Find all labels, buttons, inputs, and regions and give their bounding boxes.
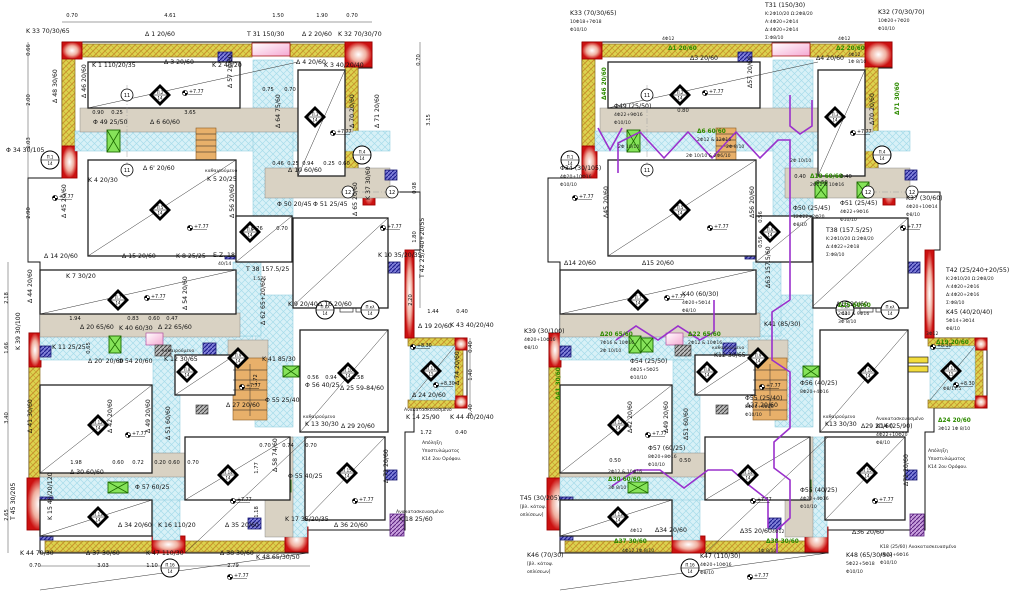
- column-marker-blue: [385, 170, 397, 180]
- svg-text:14: 14: [879, 156, 885, 161]
- note-label: Κ:2Φ10/20 Ω:2Φ8/20: [826, 236, 874, 242]
- panel-marker-circle: Π.1614: [161, 559, 179, 577]
- member-label: Δ 37 30/60: [86, 550, 120, 557]
- dimension-label: 2.18: [4, 292, 10, 304]
- drawing-stage: Π.214Π.314Π.514Π.614Π.714Π.814Π.914Π.101…: [0, 0, 1024, 595]
- svg-text:Π.4: Π.4: [359, 150, 366, 155]
- member-label: K12 30/65: [714, 352, 746, 359]
- svg-text:+7.77: +7.77: [879, 497, 894, 503]
- svg-text:14: 14: [225, 476, 231, 481]
- column-marker-red: [455, 338, 467, 350]
- member-label: Δ14 20/60: [564, 260, 596, 267]
- member-label: Δ 16 20/60: [318, 301, 352, 308]
- note-label: 4Φ25+5Φ25: [630, 367, 659, 373]
- wall-beam-pink: [252, 43, 290, 56]
- beam-label-green: Δ6 60/60: [697, 129, 726, 135]
- note-label: 8Φ20+8Φ16: [648, 454, 677, 460]
- note-label: 8Φ20+4Φ16: [800, 389, 829, 395]
- beam-label-green: Δ30 60/60: [608, 477, 641, 483]
- dimension-label: 0.25: [323, 161, 335, 167]
- member-label: K 3 40/20/40: [324, 62, 364, 69]
- dimension-label: 0.56: [758, 236, 764, 248]
- member-label: Δ36 20/60: [852, 529, 884, 536]
- beam-label-green: Δ1 20/60: [668, 46, 697, 52]
- note-label: 2Φ 10/10: [600, 348, 621, 354]
- member-label: K 5 20/25: [207, 176, 237, 183]
- note-label: 2Φ12 & 12Φ16: [697, 137, 731, 143]
- svg-text:14: 14: [767, 233, 773, 238]
- svg-text:Π.13: Π.13: [613, 512, 623, 517]
- column-marker-blue: [908, 262, 920, 273]
- beam-label-green: Δ19 20/60: [936, 340, 969, 346]
- member-label: K 12 30/65: [164, 356, 198, 363]
- member-label: Δ 10 60/60: [288, 167, 322, 174]
- note-label: 2Φ10 & 9Φ16: [838, 311, 869, 317]
- member-label: T42 (25/240+20/55): [945, 267, 1009, 274]
- note-label: 10Φ20+7Φ20: [878, 18, 910, 24]
- member-label: T 42 25/240+20/55: [419, 218, 426, 279]
- member-label: Δ 38 30/60: [220, 550, 254, 557]
- note-label: Φ10/10: [648, 462, 665, 468]
- svg-text:14: 14: [157, 96, 163, 101]
- member-label: K 41 85/30: [262, 356, 296, 363]
- beam-label-green: Δ22 65/60: [688, 332, 721, 338]
- dimension-label: 0.70: [187, 460, 199, 466]
- dimension-label: 0.50: [679, 458, 691, 464]
- svg-text:+7.77: +7.77: [757, 497, 772, 503]
- dimension-label: 0.90: [92, 110, 104, 116]
- column-marker-blue: [388, 262, 400, 273]
- svg-text:Π.2: Π.2: [157, 90, 164, 95]
- member-label: Δ 71 20/60: [374, 94, 381, 128]
- member-label: Δ 45 20/60: [61, 184, 68, 218]
- note-label: 3Φ12 1Φ 8/10: [938, 426, 970, 432]
- member-label: Φ 49 25/50: [93, 119, 128, 126]
- member-label: K13 30/30: [825, 421, 857, 428]
- panel-marker-circle: Π.1614: [681, 559, 699, 577]
- member-label: K 4 20/30: [88, 177, 118, 184]
- svg-text:14: 14: [615, 426, 621, 431]
- dimension-label: 1.77: [254, 462, 260, 474]
- dimension-label: 0.72: [132, 460, 144, 466]
- dimension-label: 0.94: [325, 375, 337, 381]
- svg-text:14: 14: [359, 156, 365, 161]
- wall-segment: [62, 57, 75, 148]
- member-label: Φ56 (40/25): [800, 380, 837, 387]
- member-label: Δ49 20/60: [663, 401, 670, 433]
- svg-text:+7.77: +7.77: [857, 129, 872, 135]
- note-label: 2Φ12 & 10Φ16: [608, 469, 642, 475]
- svg-text:14: 14: [677, 96, 683, 101]
- svg-text:14: 14: [864, 474, 870, 479]
- column-marker-blue: [40, 346, 51, 357]
- pink-box: [146, 333, 163, 345]
- wall-segment: [975, 346, 983, 400]
- note-label: 4Φ12 1Φ 8/10: [622, 548, 654, 554]
- beam-label-green: Δ20 65/60: [600, 332, 633, 338]
- note-label: Σ:Φ8/10: [946, 300, 964, 306]
- member-label: K 40 60/30: [119, 325, 153, 332]
- note-label: Φ8/10: [700, 570, 714, 576]
- note-label: 2Φ 10/10: [618, 144, 639, 150]
- note-label: 40/14: [218, 261, 231, 267]
- member-label: Δ 42 20/60: [107, 399, 114, 433]
- svg-text:+7.77: +7.77: [579, 194, 594, 200]
- note-label: 7Φ16 & 10Φ16: [600, 340, 634, 346]
- member-label: T45 (30/205): [519, 495, 560, 502]
- svg-text:Π.κλ: Π.κλ: [885, 305, 895, 310]
- note-label: 5Φ14+3Φ14: [946, 318, 975, 324]
- dimension-label: 0.40: [456, 309, 468, 315]
- svg-text:+7.77: +7.77: [714, 224, 729, 230]
- note-label: Κ:2Φ10/20 Ω:2Φ8/20: [946, 276, 994, 282]
- svg-text:14: 14: [312, 118, 318, 123]
- dimension-label: 1.66: [4, 342, 10, 354]
- svg-text:14: 14: [755, 359, 761, 364]
- member-label: Δ42 20/60: [627, 401, 634, 433]
- dimension-label: 0.60: [338, 161, 350, 167]
- member-label: K 44 70/30: [20, 550, 54, 557]
- member-label: K37 (30/60): [906, 195, 943, 202]
- beam-label-green: Δ38 30/60: [766, 539, 799, 545]
- dimension-label: 0.70: [346, 13, 358, 19]
- note-label: 1Φ 8/10: [758, 548, 776, 554]
- dimension-label: 0.75: [262, 87, 274, 93]
- svg-text:14: 14: [115, 301, 121, 306]
- svg-text:+8.30: +8.30: [440, 381, 455, 387]
- svg-text:+7.77: +7.77: [359, 497, 374, 503]
- section-marker: 12: [386, 186, 398, 198]
- section-marker: 11: [121, 89, 133, 101]
- note-label: Φ8/17.5: [943, 386, 961, 392]
- member-label: K 13 30/30: [305, 421, 339, 428]
- note-label: 4Φ12: [848, 52, 860, 58]
- beam-zone: [560, 313, 760, 337]
- dimension-label: 3.15: [426, 114, 432, 126]
- member-label: Φ54 (25/50): [630, 358, 667, 365]
- note-label: Ανακατασκευασμένο: [396, 508, 444, 515]
- dimension-label: 1.80: [412, 231, 418, 243]
- hatch-box: [716, 405, 728, 414]
- member-label: Δ 4 20/60: [296, 59, 326, 66]
- note-label: καθαιρούμενο: [303, 413, 335, 420]
- stair: [196, 128, 216, 160]
- member-label: K 16 110/20: [158, 522, 196, 529]
- member-label: Δ57 20/60: [747, 56, 754, 88]
- column-marker-red: [29, 333, 41, 367]
- svg-text:14: 14: [167, 569, 173, 574]
- svg-text:Π.8: Π.8: [184, 367, 191, 372]
- svg-text:14: 14: [95, 426, 101, 431]
- svg-text:14: 14: [865, 374, 871, 379]
- member-label: K 48 65/30/50: [256, 554, 300, 561]
- svg-text:14: 14: [184, 373, 190, 378]
- svg-text:Π.3: Π.3: [832, 112, 839, 117]
- member-label: Δ 36 20/60: [334, 522, 368, 529]
- member-label: K 39 30/100: [15, 312, 22, 350]
- dimension-label: 0.70: [284, 87, 296, 93]
- member-label: K41 (85/30): [764, 321, 801, 328]
- beam-label-green: Δ24 20/60: [938, 418, 971, 424]
- member-label: Δ 72 20/60: [383, 449, 390, 483]
- member-label: Δ 20 65/60: [80, 324, 114, 331]
- member-label: Δ3 20/60: [690, 55, 718, 62]
- note-label: Φ8/10: [524, 345, 538, 351]
- member-label: K 8 25/25: [176, 253, 206, 260]
- note-label: Α:4Φ20+2Φ14: [765, 19, 798, 25]
- member-label: K 37 30/60: [365, 166, 372, 200]
- dimension-label: 1.94: [69, 316, 81, 322]
- svg-text:Π.12: Π.12: [93, 420, 103, 425]
- member-label: K 47 110/30: [146, 550, 184, 557]
- column-marker-red: [865, 42, 892, 67]
- note-label: καθαιρούμενο: [712, 344, 744, 351]
- dimension-label: 0.83: [127, 316, 139, 322]
- member-label: Δ 14 20/60: [44, 253, 78, 260]
- svg-text:12: 12: [389, 190, 395, 196]
- dimension-label: 0.76: [251, 226, 263, 232]
- note-label: 4Φ22+9Φ16: [614, 112, 643, 118]
- svg-text:Π.4: Π.4: [879, 150, 886, 155]
- member-label: Δ 3 20/60: [164, 59, 194, 66]
- svg-text:Π.κλ: Π.κλ: [365, 305, 375, 310]
- note-label: Φ8/10: [682, 308, 696, 314]
- note-label: καθαιρούμενο: [205, 167, 237, 174]
- member-label: Δ 35 20/60: [225, 522, 259, 529]
- beam-label-green: Δ41 30/60: [556, 367, 562, 400]
- note-label: 4Φ20+10Φ14: [906, 204, 938, 210]
- column-marker-red: [975, 338, 987, 350]
- svg-text:+8.30: +8.30: [417, 343, 432, 349]
- wall-segment: [290, 44, 345, 57]
- svg-text:Π.15: Π.15: [862, 468, 872, 473]
- member-label: Δ63 157.5/60: [765, 246, 772, 288]
- dimension-label: 2.79: [227, 563, 239, 569]
- note-label: Φ8/10: [906, 212, 920, 218]
- column-marker-red: [62, 42, 82, 59]
- note-label: Δ:4Φ20+2Φ14: [765, 27, 798, 33]
- svg-text:Π.9: Π.9: [235, 353, 242, 358]
- note-label: 4Φ22+4Φ16: [800, 496, 829, 502]
- member-label: Δ 51 60/60: [165, 406, 172, 440]
- note-label: Φ8/10: [946, 326, 960, 332]
- note-label: οπλίσεων]: [527, 568, 551, 575]
- svg-text:Π.1: Π.1: [567, 155, 574, 160]
- dimension-label: 0.40: [468, 341, 474, 353]
- structural-plan-drawing: Π.214Π.314Π.514Π.614Π.714Π.814Π.914Π.101…: [0, 0, 1024, 595]
- svg-text:12: 12: [345, 190, 351, 196]
- dimension-label: 3.03: [97, 563, 109, 569]
- note-label: Ανακατασκευασμένο: [876, 415, 924, 422]
- member-label: T 31 150/30: [246, 31, 284, 38]
- member-label: Δ72 20/60: [903, 454, 910, 486]
- member-label: Φ55 (25/40): [745, 395, 782, 402]
- member-label: K47 (110/30): [700, 553, 741, 560]
- member-label: Δ35 20/60: [740, 528, 772, 535]
- member-label: K 10 35/20/35: [378, 252, 422, 259]
- dimension-label: 2.90: [26, 207, 32, 219]
- svg-text:+7.77: +7.77: [151, 294, 166, 300]
- member-label: K 14 25/90: [406, 414, 440, 421]
- note-label: Φ10/10: [560, 182, 577, 188]
- svg-text:14: 14: [95, 518, 101, 523]
- dimension-label: 0.70: [66, 13, 78, 19]
- panel-marker-circle: Π.414: [353, 146, 371, 164]
- svg-text:Π.10: Π.10: [343, 368, 353, 373]
- column-marker-blue: [560, 346, 571, 357]
- member-label: Φ 55 40/25: [288, 473, 323, 480]
- svg-text:14: 14: [157, 211, 163, 216]
- svg-text:+7.77: +7.77: [189, 89, 204, 95]
- svg-text:+7.77: +7.77: [754, 573, 769, 579]
- member-label: K39 (30/100): [524, 328, 565, 335]
- member-label: Δ 49 20/60: [145, 399, 152, 433]
- note-label: Φ10/10: [840, 217, 857, 223]
- dimension-label: 4.61: [164, 13, 176, 19]
- svg-text:11: 11: [644, 93, 650, 99]
- dimension-label: 1.50: [272, 13, 284, 19]
- note-label: 4Φ20+10Φ16: [700, 562, 732, 568]
- member-label: Φ55 (40/25): [800, 487, 837, 494]
- note-label: Φ10/10: [614, 120, 631, 126]
- dimension-label: 0.60: [112, 460, 124, 466]
- member-label: Δ45 20/60: [603, 186, 610, 218]
- dimension-label: 1.72: [420, 430, 432, 436]
- svg-text:14: 14: [832, 118, 838, 123]
- dimension-label: 0.98: [412, 182, 418, 194]
- member-label: Δ 64 75/60: [275, 94, 282, 128]
- member-label: K 18 25/60: [399, 516, 433, 523]
- member-label: Δ 48 30/60: [52, 69, 59, 103]
- section-marker: 11: [641, 164, 653, 176]
- panel-marker-circle: Π.κλ14: [881, 301, 899, 319]
- note-label: Υποστυλώματος: [927, 455, 966, 462]
- dimension-label: 0.74: [282, 443, 294, 449]
- note-label: Φ10/10: [800, 504, 817, 510]
- member-label: Δ 24 20/60: [412, 392, 446, 399]
- note-label: 2Φ 8/10: [726, 144, 744, 150]
- member-label: Δ 19 20/60: [418, 323, 452, 330]
- svg-text:14: 14: [345, 374, 351, 379]
- note-label: 10Φ18+7Φ18: [570, 19, 602, 25]
- note-label: 4Φ22+10Φ20: [876, 432, 908, 438]
- beam-label-green: Δ25 60/60: [838, 303, 871, 309]
- note-label: 4Φ12: [662, 36, 674, 42]
- member-label: Δ 41 30/60: [27, 399, 34, 433]
- dimension-label: 0.25: [111, 110, 123, 116]
- svg-text:Π.12: Π.12: [613, 420, 623, 425]
- svg-text:Π.5: Π.5: [157, 205, 164, 210]
- dimension-label: 0.80: [677, 108, 689, 114]
- note-label: Φ10/10: [880, 560, 897, 566]
- dimension-label: 0.40: [794, 174, 806, 180]
- svg-text:Π.2: Π.2: [677, 90, 684, 95]
- note-label: καθαιρούμενο: [823, 413, 855, 420]
- svg-text:Π.7: Π.7: [635, 295, 642, 300]
- member-label: E.Z. 18: [213, 252, 235, 259]
- dimension-label: 0.56: [307, 375, 319, 381]
- note-label: K14 2ου Ορόφου.: [928, 463, 967, 470]
- svg-text:14: 14: [615, 518, 621, 523]
- member-label: Φ 51 25/45: [313, 201, 348, 208]
- dimension-label: 3.40: [4, 412, 10, 424]
- hatch-box: [675, 345, 691, 356]
- svg-text:11: 11: [124, 168, 130, 174]
- member-label: Δ 1 20/60: [145, 31, 175, 38]
- dimension-label: 0.70: [259, 443, 271, 449]
- dimension-label: 0.66: [26, 44, 32, 56]
- note-label: 3Φ 8/10: [608, 485, 626, 491]
- dimension-label: 1.98: [70, 460, 82, 466]
- svg-text:Π.14: Π.14: [223, 470, 233, 475]
- dimension-label: 0.60: [148, 316, 160, 322]
- member-label: Φ 55 25/40: [265, 397, 300, 404]
- note-label: 4Φ12: [630, 528, 642, 534]
- svg-text:+7.77: +7.77: [234, 573, 249, 579]
- note-label: 2Φ 10/10 & 2Φ6/10: [686, 153, 731, 159]
- member-label: K32 (70/30/70): [878, 9, 925, 16]
- svg-text:14: 14: [677, 211, 683, 216]
- svg-text:11: 11: [124, 93, 130, 99]
- dimension-label: 2.00: [26, 94, 32, 106]
- note-label: Φ10/10: [745, 412, 762, 418]
- svg-text:+8.30: +8.30: [960, 381, 975, 387]
- member-label: Δ 65 20/60: [352, 182, 359, 216]
- member-label: Δ34 20/60: [655, 527, 687, 534]
- note-label: 4Φ20+10Φ16: [524, 337, 556, 343]
- note-label: Σ:Φ8/10: [765, 35, 783, 41]
- member-label: Δ 15 20/60: [122, 253, 156, 260]
- note-label: Απόληξη: [928, 447, 948, 454]
- member-label: Δ 54 20/60: [182, 276, 189, 310]
- member-label: Δ 27 20/60: [226, 402, 260, 409]
- note-label: K18 (25/60) Ανακατασκευασμένο: [880, 543, 957, 550]
- svg-text:14: 14: [704, 373, 710, 378]
- beam-label-green: Δ71 30/60: [895, 82, 901, 115]
- member-label: Δ 6' 20/60: [143, 165, 175, 172]
- dimension-label: 0.40: [455, 430, 467, 436]
- note-label: Κ:2Φ10/20 Ω:2Φ8/20: [765, 11, 813, 17]
- member-label: Φ 57 60/25: [135, 484, 170, 491]
- member-label: K45 (40/20/40): [946, 309, 993, 316]
- member-label: Δ27 20/60: [746, 402, 778, 409]
- member-label: Δ29 20/60: [861, 423, 893, 430]
- beam-label-green: Δ2 20/60: [836, 46, 865, 52]
- note-label: 12Φ22+2Φ20: [793, 214, 825, 220]
- note-label: 4Φ22+9Φ16: [840, 209, 869, 215]
- svg-text:14: 14: [322, 311, 328, 316]
- dimension-label: 0.56: [758, 211, 764, 223]
- member-label: K40 (60/30): [682, 291, 719, 298]
- member-label: Δ4 20/60: [816, 55, 844, 62]
- member-label: K 1 110/20/35: [92, 62, 136, 69]
- svg-text:14: 14: [367, 311, 373, 316]
- member-label: Φ34 (30/105): [560, 165, 601, 172]
- dimension-label: 2.20: [408, 294, 414, 306]
- note-label: [βλ. κάτοψ.: [527, 560, 553, 567]
- dimension-label: 0.94: [302, 161, 314, 167]
- dimension-label: 0.60: [168, 460, 180, 466]
- member-label: K 7 30/20: [66, 273, 96, 280]
- hatch-box: [196, 405, 208, 414]
- member-label: Δ 29 20/60: [341, 423, 375, 430]
- svg-text:15: 15: [428, 372, 434, 377]
- elevation-spot: +7.77: [747, 573, 768, 580]
- member-label: K33 (70/30/65): [570, 10, 617, 17]
- dimension-label: 0.70: [416, 54, 422, 66]
- beam-label-green: Δ46 20/60: [602, 67, 608, 100]
- note-label: Φ10/10: [570, 27, 587, 33]
